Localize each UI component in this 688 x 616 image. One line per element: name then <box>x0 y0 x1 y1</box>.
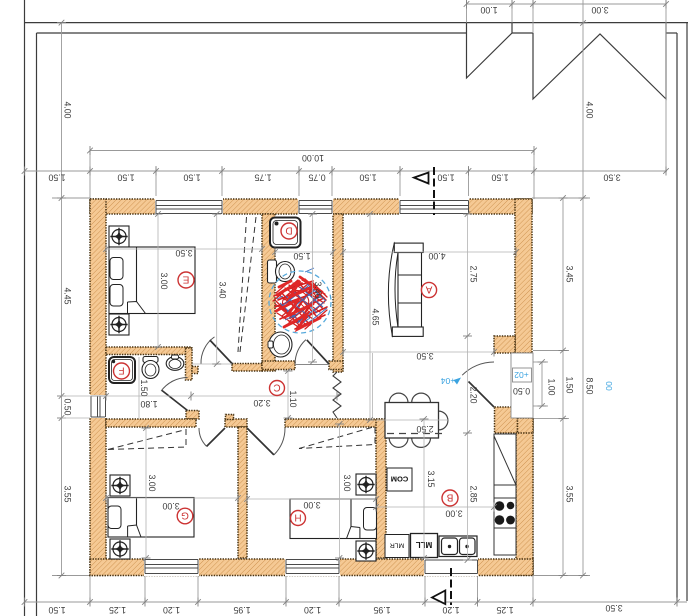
svg-text:3.00: 3.00 <box>147 474 157 491</box>
svg-text:3.00: 3.00 <box>591 5 608 15</box>
svg-text:1.20: 1.20 <box>163 605 180 615</box>
svg-text:3.55: 3.55 <box>63 485 73 502</box>
svg-text:00: 00 <box>604 381 614 391</box>
svg-text:4.00: 4.00 <box>63 101 73 118</box>
svg-text:3.15: 3.15 <box>426 470 436 487</box>
svg-text:3.00: 3.00 <box>445 509 462 519</box>
svg-text:D: D <box>285 225 292 236</box>
svg-text:4.45: 4.45 <box>63 287 73 304</box>
svg-text:1.50: 1.50 <box>48 605 65 615</box>
svg-text:1.20: 1.20 <box>304 605 321 615</box>
svg-text:1.50: 1.50 <box>491 173 508 183</box>
svg-text:3.50: 3.50 <box>605 603 622 613</box>
svg-text:0.75: 0.75 <box>308 173 325 183</box>
svg-text:1.50: 1.50 <box>293 251 310 261</box>
svg-text:C: C <box>273 382 280 393</box>
svg-text:1.50: 1.50 <box>437 173 454 183</box>
svg-text:2.75: 2.75 <box>469 265 479 282</box>
svg-text:1.10: 1.10 <box>288 390 298 407</box>
svg-text:1.50: 1.50 <box>359 173 376 183</box>
svg-text:+02: +02 <box>514 370 529 380</box>
svg-text:4.00: 4.00 <box>585 101 595 118</box>
svg-text:3.40: 3.40 <box>313 281 323 298</box>
svg-text:1.20: 1.20 <box>442 605 459 615</box>
svg-text:1.25: 1.25 <box>109 605 126 615</box>
svg-text:3.50: 3.50 <box>175 248 192 258</box>
svg-text:3.00: 3.00 <box>342 474 352 491</box>
svg-text:3.50: 3.50 <box>603 173 620 183</box>
svg-text:1.25: 1.25 <box>496 605 513 615</box>
svg-text:A: A <box>425 284 432 295</box>
svg-text:1.50: 1.50 <box>48 173 65 183</box>
svg-text:3.55: 3.55 <box>565 485 575 502</box>
svg-text:1.00: 1.00 <box>480 5 497 15</box>
svg-text:3.50: 3.50 <box>416 351 433 361</box>
svg-text:1.80: 1.80 <box>140 399 157 409</box>
svg-text:0.50: 0.50 <box>513 386 530 396</box>
svg-text:1.50: 1.50 <box>117 173 134 183</box>
svg-text:3.00: 3.00 <box>303 500 320 510</box>
svg-text:1.00: 1.00 <box>547 378 557 395</box>
svg-text:B: B <box>446 492 453 503</box>
svg-text:H: H <box>294 512 301 523</box>
svg-text:2.85: 2.85 <box>469 485 479 502</box>
svg-text:+04: +04 <box>441 376 456 386</box>
svg-text:COM: COM <box>391 475 409 484</box>
svg-text:3.00: 3.00 <box>162 501 179 511</box>
svg-text:1.95: 1.95 <box>233 605 250 615</box>
svg-text:4.00: 4.00 <box>428 251 445 261</box>
svg-text:MLR: MLR <box>390 542 404 549</box>
svg-text:3.20: 3.20 <box>253 398 270 408</box>
svg-text:1.50: 1.50 <box>139 379 149 396</box>
svg-text:2.50: 2.50 <box>416 424 433 434</box>
svg-text:1.95: 1.95 <box>373 605 390 615</box>
svg-text:1.50: 1.50 <box>565 376 575 393</box>
svg-text:1.50: 1.50 <box>183 173 200 183</box>
svg-text:3.45: 3.45 <box>565 265 575 282</box>
svg-text:0.50: 0.50 <box>63 398 73 415</box>
svg-text:3.00: 3.00 <box>159 272 169 289</box>
svg-text:E: E <box>182 274 189 285</box>
svg-text:3.40: 3.40 <box>218 281 228 298</box>
svg-text:8.50: 8.50 <box>585 377 595 394</box>
svg-text:4.65: 4.65 <box>371 308 381 325</box>
svg-text:F: F <box>118 365 124 376</box>
svg-text:G: G <box>181 510 189 521</box>
svg-text:1.75: 1.75 <box>254 173 271 183</box>
svg-text:10.00: 10.00 <box>302 153 324 163</box>
svg-text:2.20: 2.20 <box>469 386 479 403</box>
